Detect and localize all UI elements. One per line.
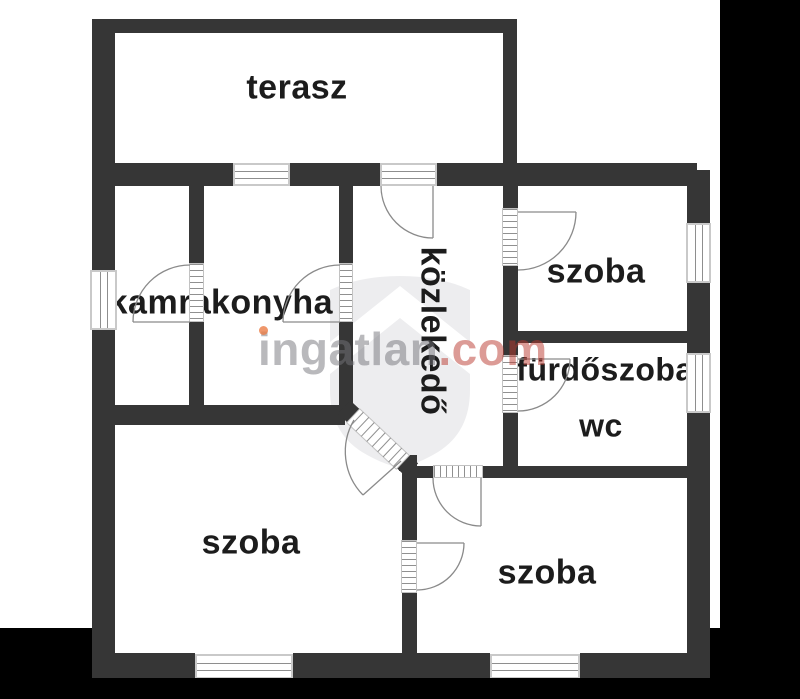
outside-mask-bottom-left — [0, 628, 92, 678]
door-arc-terasz — [381, 186, 433, 238]
door-symbol-diagonal — [347, 409, 410, 469]
watermark-brand: ingatlan.com — [258, 322, 548, 376]
watermark-brand-name: ingatlan — [258, 323, 438, 375]
door-arc-szoba-divider — [417, 543, 464, 590]
outside-mask-right — [720, 0, 800, 699]
floorplan-canvas: terasz kamra konyha közlekedő szoba fürd… — [0, 0, 800, 699]
door-arc-szoba-bottom-right — [433, 478, 481, 526]
door-arc-szoba-top-right — [518, 212, 576, 270]
watermark-brand-suffix: .com — [438, 323, 547, 375]
door-arc-kamra — [133, 265, 190, 322]
door-leaf-diagonal — [363, 461, 401, 495]
door-arc-konyha — [283, 265, 340, 322]
outside-mask-bottom — [0, 678, 800, 699]
watermark-dot-icon — [259, 326, 268, 335]
